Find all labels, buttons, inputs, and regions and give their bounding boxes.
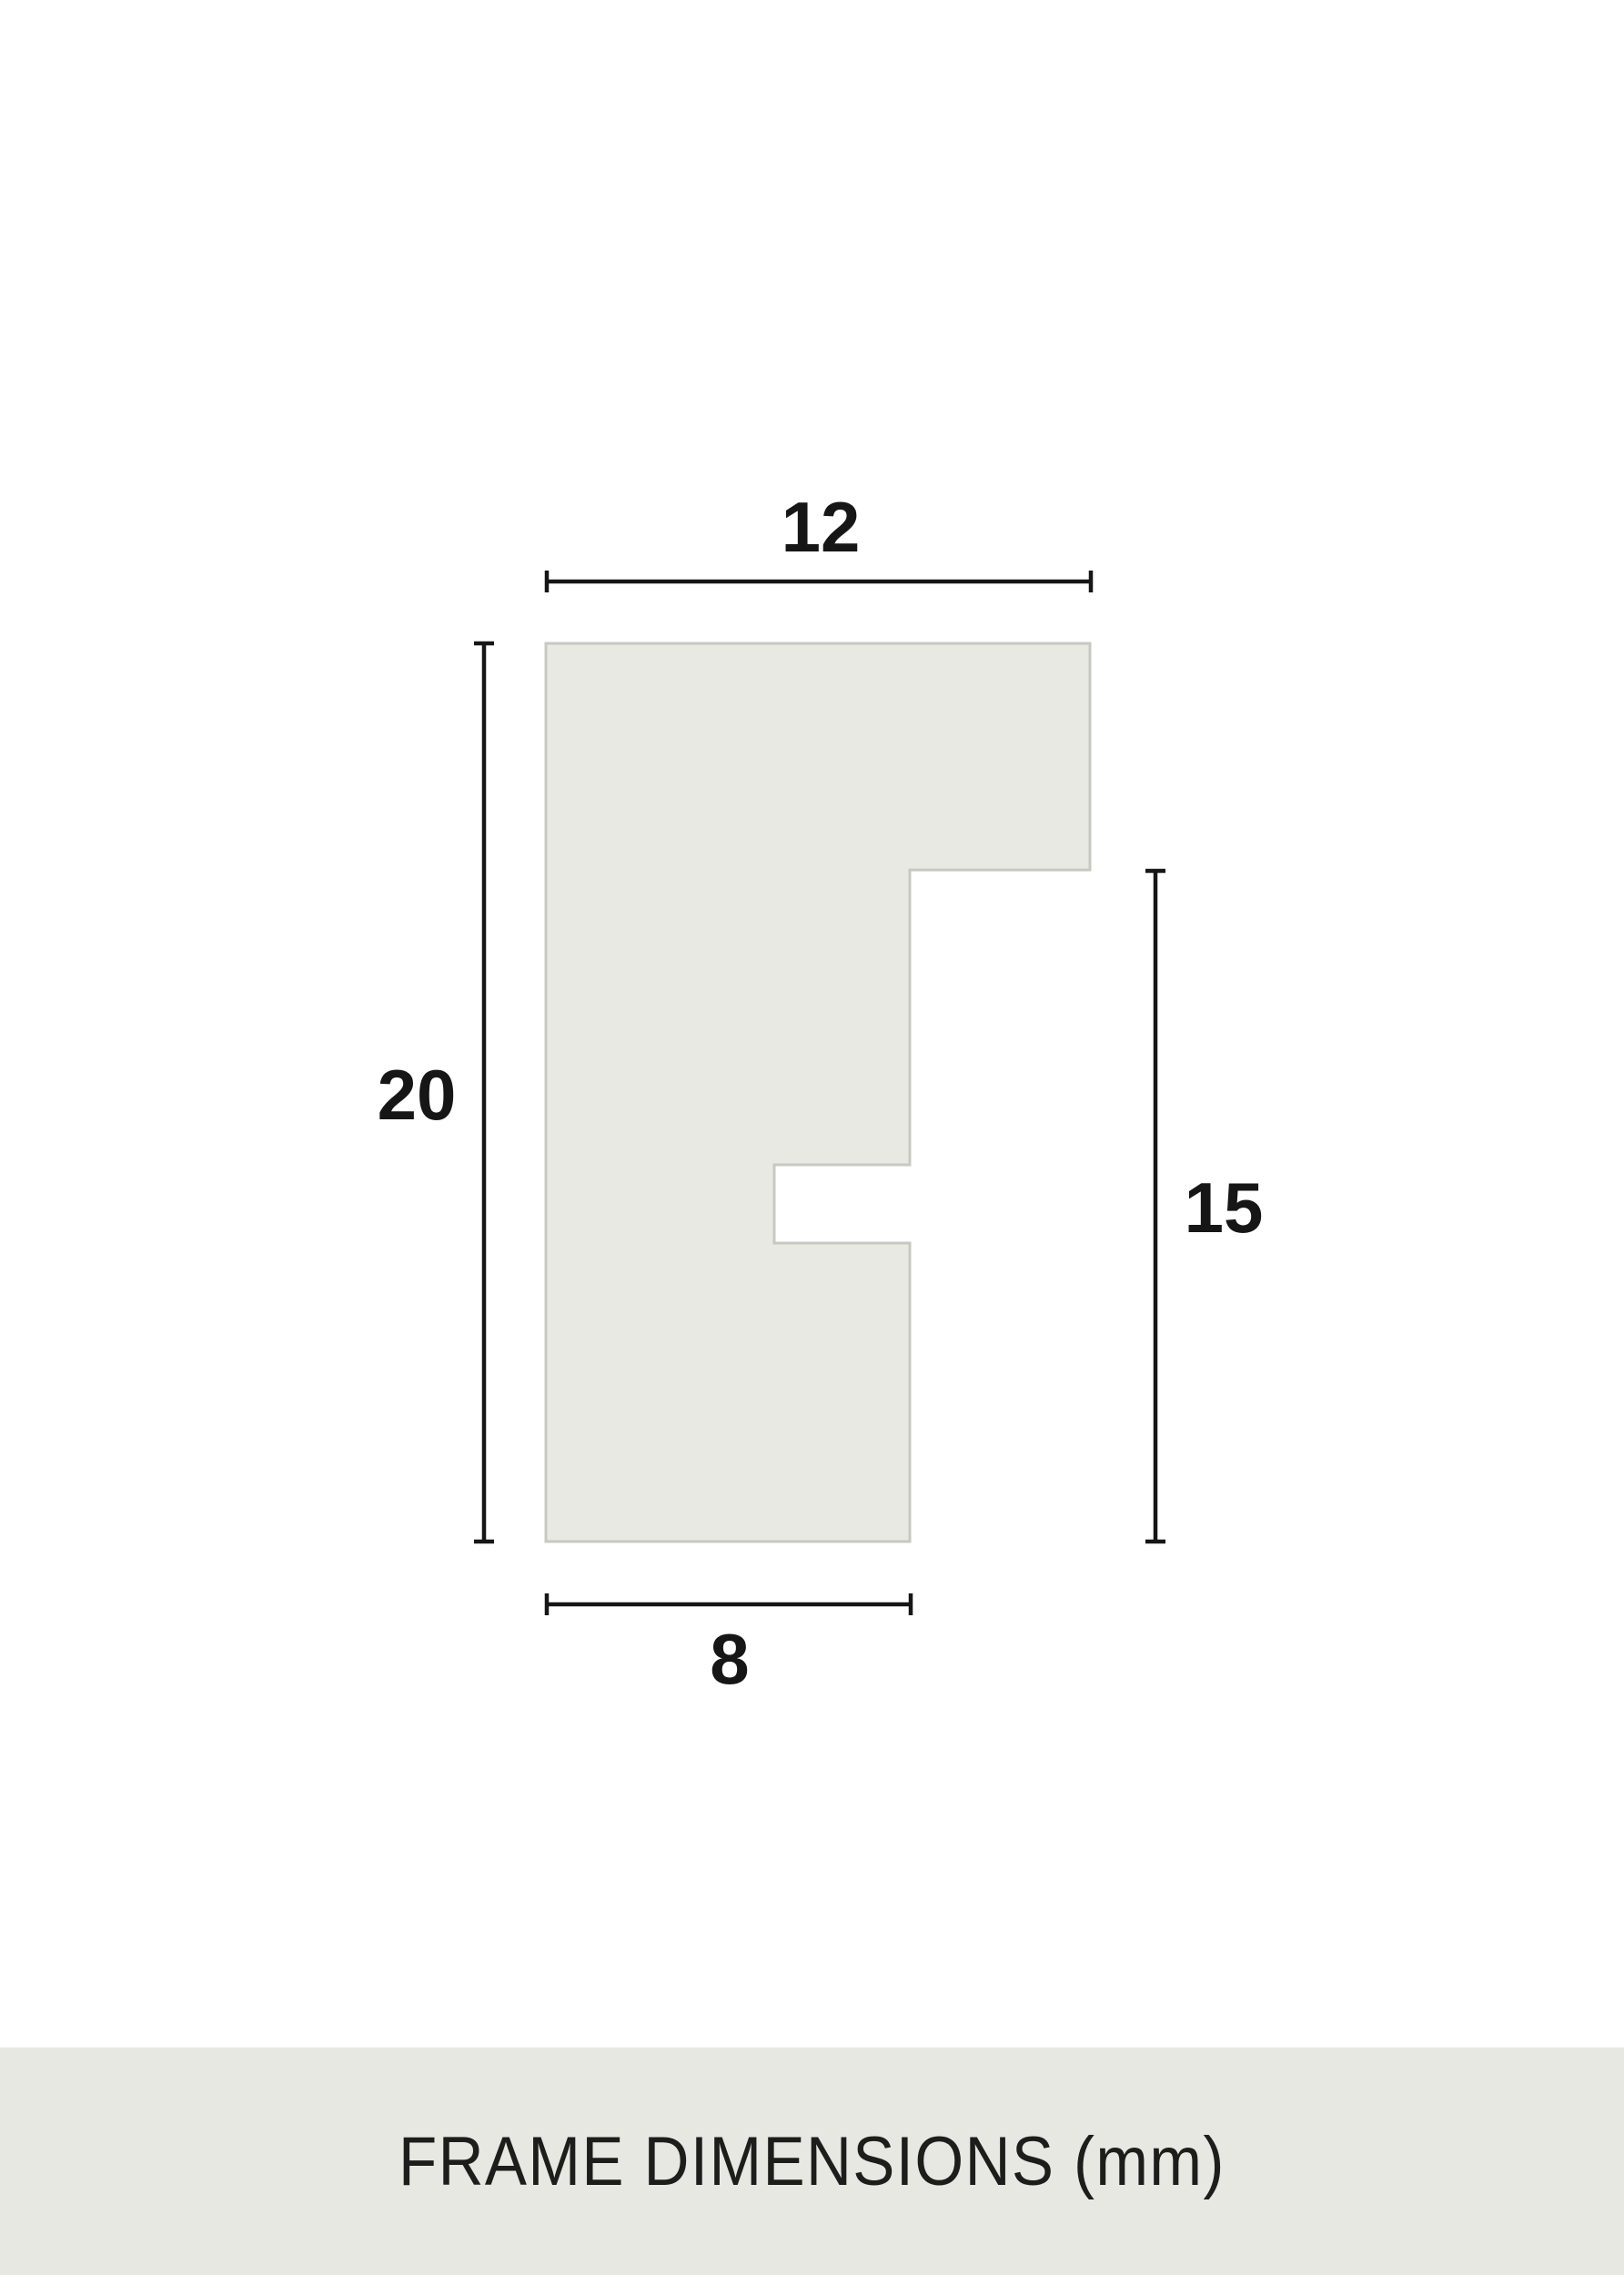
dimension-right-height: 15 bbox=[1145, 871, 1263, 1542]
dimension-label-left: 20 bbox=[378, 1055, 457, 1135]
dimension-left-height: 20 bbox=[378, 643, 494, 1542]
dimension-label-right: 15 bbox=[1185, 1168, 1264, 1248]
profile-cross-section-drawing: 12 20 15 8 bbox=[0, 0, 1624, 2275]
frame-profile-shape bbox=[546, 643, 1090, 1542]
dimension-line-bottom bbox=[547, 1593, 911, 1615]
caption-text: FRAME DIMENSIONS (mm) bbox=[398, 2122, 1226, 2201]
dimension-top-width: 12 bbox=[547, 487, 1091, 592]
dimension-label-bottom: 8 bbox=[710, 1619, 749, 1699]
dimension-line-left bbox=[474, 643, 494, 1542]
frame-dimension-diagram: 12 20 15 8 FRAME DIMENSIONS (mm) bbox=[0, 0, 1624, 2275]
dimension-line-top bbox=[547, 571, 1091, 592]
caption-banner: FRAME DIMENSIONS (mm) bbox=[0, 2047, 1624, 2275]
dimension-label-top: 12 bbox=[782, 487, 861, 567]
dimension-line-right bbox=[1145, 871, 1165, 1542]
dimension-bottom-width: 8 bbox=[547, 1593, 911, 1699]
